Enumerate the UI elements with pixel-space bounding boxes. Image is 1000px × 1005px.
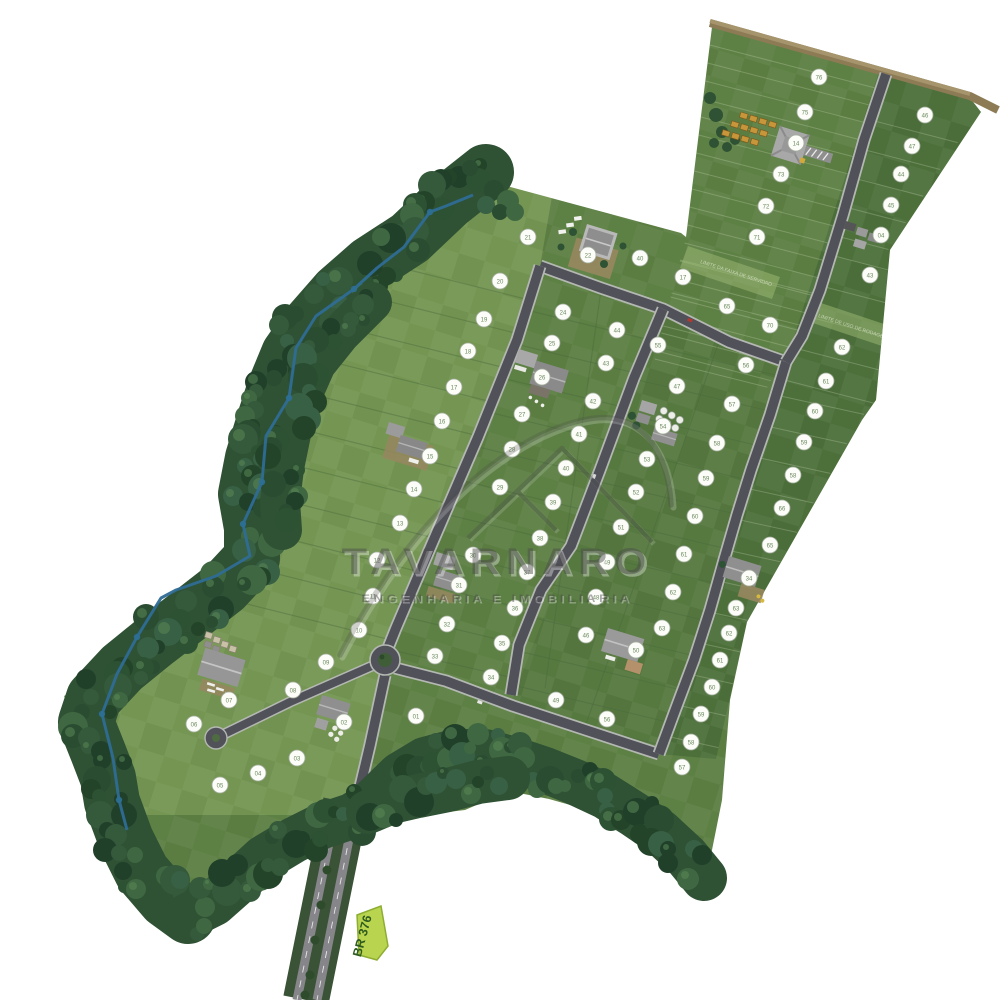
svg-text:03: 03 (294, 756, 301, 762)
svg-text:32: 32 (444, 622, 451, 628)
svg-text:40: 40 (563, 466, 570, 472)
svg-text:17: 17 (680, 275, 687, 281)
svg-text:06: 06 (191, 722, 198, 728)
svg-text:58: 58 (790, 473, 797, 479)
svg-text:70: 70 (767, 323, 774, 329)
svg-text:41: 41 (576, 432, 583, 438)
svg-text:57: 57 (729, 402, 736, 408)
svg-text:42: 42 (590, 399, 597, 405)
svg-text:56: 56 (743, 363, 750, 369)
svg-text:39: 39 (550, 500, 557, 506)
svg-text:ENGENHARIA E IMOBILIARIA: ENGENHARIA E IMOBILIARIA (362, 592, 633, 605)
svg-text:59: 59 (801, 440, 808, 446)
svg-text:46: 46 (922, 113, 929, 119)
svg-text:63: 63 (659, 626, 666, 632)
svg-text:71: 71 (754, 235, 761, 241)
svg-text:33: 33 (432, 654, 439, 660)
svg-text:49: 49 (553, 698, 560, 704)
svg-text:34: 34 (746, 576, 753, 582)
svg-text:20: 20 (497, 279, 504, 285)
svg-text:15: 15 (427, 454, 434, 460)
svg-text:53: 53 (644, 457, 651, 463)
svg-text:13: 13 (397, 521, 404, 527)
svg-text:19: 19 (481, 317, 488, 323)
svg-text:59: 59 (703, 476, 710, 482)
svg-text:14: 14 (411, 487, 418, 493)
svg-text:17: 17 (451, 385, 458, 391)
svg-text:54: 54 (660, 424, 667, 430)
svg-text:65: 65 (767, 543, 774, 549)
svg-text:62: 62 (670, 590, 677, 596)
svg-text:60: 60 (709, 685, 716, 691)
svg-text:73: 73 (778, 172, 785, 178)
svg-text:18: 18 (465, 349, 472, 355)
svg-text:76: 76 (816, 75, 823, 81)
svg-text:62: 62 (726, 631, 733, 637)
svg-text:75: 75 (802, 110, 809, 116)
svg-text:62: 62 (839, 345, 846, 351)
svg-text:44: 44 (898, 172, 905, 178)
svg-text:47: 47 (674, 384, 681, 390)
svg-text:04: 04 (878, 233, 885, 239)
svg-text:72: 72 (763, 204, 770, 210)
svg-text:58: 58 (714, 441, 721, 447)
svg-text:52: 52 (633, 490, 640, 496)
svg-text:35: 35 (499, 641, 506, 647)
svg-text:60: 60 (692, 514, 699, 520)
svg-text:08: 08 (290, 688, 297, 694)
svg-text:47: 47 (909, 144, 916, 150)
svg-text:44: 44 (614, 328, 621, 334)
svg-text:43: 43 (867, 273, 874, 279)
svg-text:57: 57 (679, 765, 686, 771)
svg-text:29: 29 (497, 485, 504, 491)
svg-text:16: 16 (439, 419, 446, 425)
svg-text:45: 45 (888, 203, 895, 209)
svg-text:63: 63 (733, 606, 740, 612)
svg-text:61: 61 (717, 658, 724, 664)
svg-text:61: 61 (823, 379, 830, 385)
svg-text:07: 07 (226, 698, 233, 704)
svg-text:04: 04 (255, 771, 262, 777)
svg-text:43: 43 (603, 361, 610, 367)
svg-text:25: 25 (549, 341, 556, 347)
svg-text:60: 60 (812, 409, 819, 415)
svg-text:09: 09 (323, 660, 330, 666)
svg-text:02: 02 (341, 720, 348, 726)
svg-text:05: 05 (217, 783, 224, 789)
svg-text:46: 46 (583, 633, 590, 639)
svg-text:40: 40 (637, 256, 644, 262)
svg-text:59: 59 (698, 712, 705, 718)
svg-text:34: 34 (488, 675, 495, 681)
svg-text:26: 26 (539, 375, 546, 381)
svg-text:51: 51 (618, 525, 625, 531)
svg-text:24: 24 (560, 310, 567, 316)
svg-text:58: 58 (688, 740, 695, 746)
svg-text:01: 01 (413, 714, 420, 720)
svg-text:61: 61 (681, 552, 688, 558)
svg-text:TAVARNARO: TAVARNARO (342, 541, 653, 582)
svg-text:66: 66 (779, 506, 786, 512)
svg-text:65: 65 (724, 304, 731, 310)
svg-text:36: 36 (512, 606, 519, 612)
svg-text:22: 22 (585, 253, 592, 259)
svg-text:55: 55 (655, 343, 662, 349)
svg-text:50: 50 (633, 648, 640, 654)
svg-text:27: 27 (519, 412, 526, 418)
svg-text:14: 14 (793, 141, 800, 147)
svg-text:21: 21 (525, 235, 532, 241)
svg-text:56: 56 (604, 717, 611, 723)
